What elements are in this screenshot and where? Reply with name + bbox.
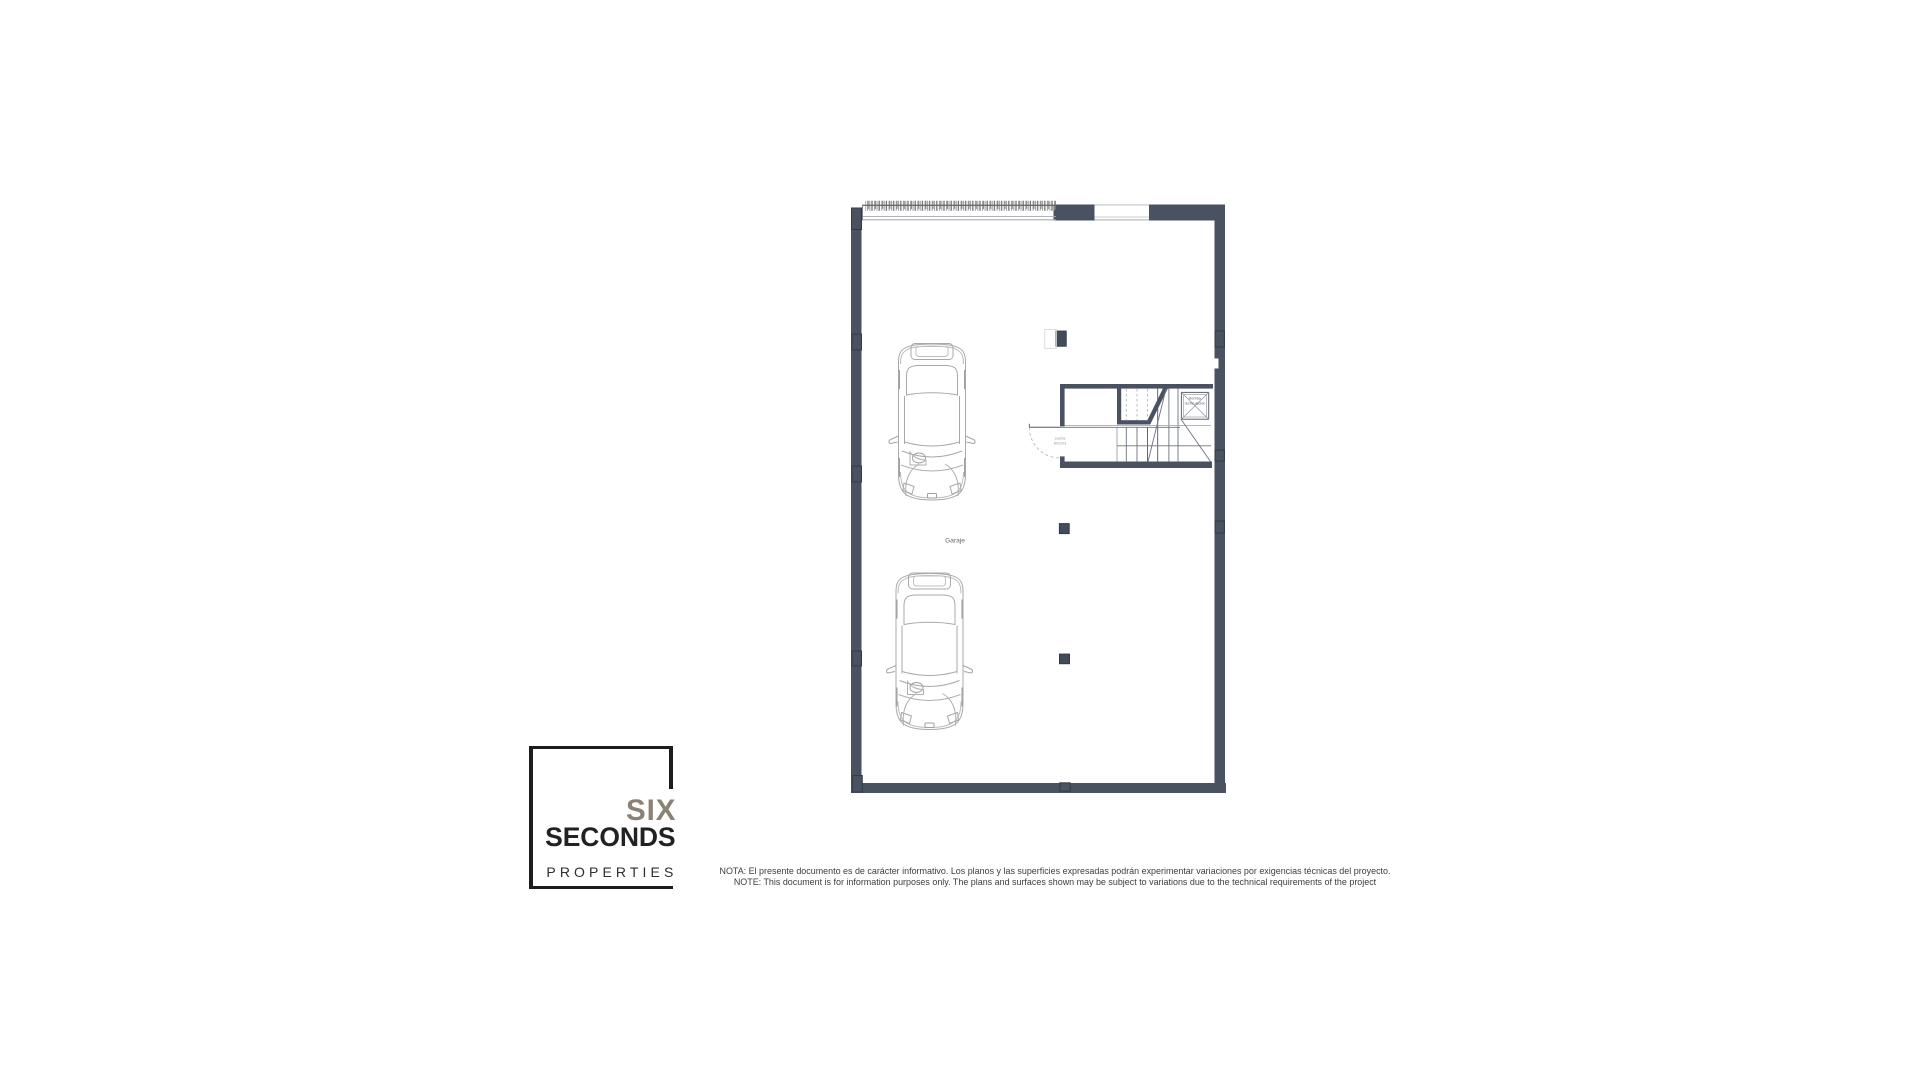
svg-text:Bomba: Bomba (1189, 397, 1202, 401)
svg-text:puerta: puerta (1055, 437, 1067, 441)
svg-text:80x203: 80x203 (1054, 441, 1066, 445)
svg-text:recirculación: recirculación (1185, 401, 1206, 405)
svg-text:Garaje: Garaje (945, 537, 965, 544)
